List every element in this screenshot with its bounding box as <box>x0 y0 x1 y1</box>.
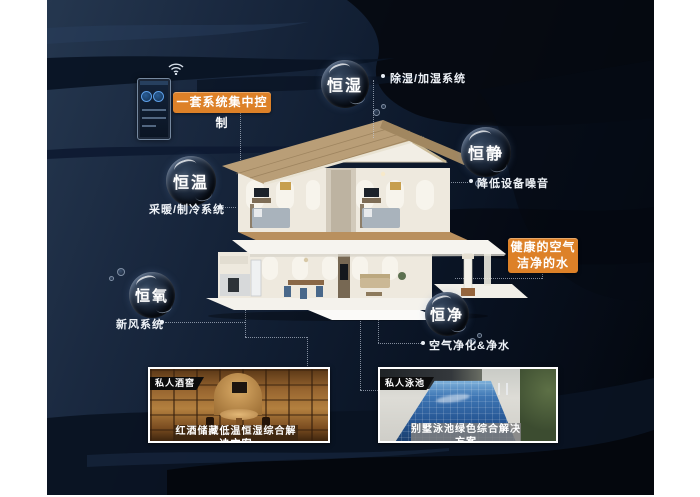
bubble-humidity: 恒湿 <box>321 60 369 108</box>
bubble-quiet: 恒静 <box>461 127 511 177</box>
note-purity: 空气净化&净水 <box>429 337 510 353</box>
corner-ribbon <box>320 367 330 393</box>
connector-line <box>307 337 308 368</box>
connector-line <box>165 322 245 323</box>
wine-cellar-frame <box>231 381 248 394</box>
bubble-decoration <box>373 109 380 116</box>
bubble-temperature: 恒温 <box>166 156 216 206</box>
note-quiet: 降低设备噪音 <box>477 175 549 191</box>
panel-dial <box>153 91 164 102</box>
bullet-dot <box>469 179 473 183</box>
bubble-oxygen: 恒氧 <box>129 272 175 318</box>
bubble-decoration <box>109 276 114 281</box>
bullet-dot <box>381 74 385 78</box>
bullet-dot <box>421 341 425 345</box>
panel-row <box>142 109 166 111</box>
healthy-air-water-callout: 健康的空气 洁净的水 <box>508 238 578 273</box>
wifi-icon <box>168 62 184 75</box>
connector-line <box>240 112 241 160</box>
note-oxygen: 新风系统 <box>116 316 164 332</box>
bubble-decoration <box>117 268 125 276</box>
note-humidity: 除湿/加湿系统 <box>390 70 466 86</box>
corner-ribbon <box>548 367 558 393</box>
wine-cellar-caption: 红酒储藏低温恒湿综合解决方案 <box>174 425 298 443</box>
pool-tag: 私人泳池 <box>380 377 434 390</box>
smart-control-panel <box>137 78 171 140</box>
wine-cellar-photo: 私人酒窖 红酒储藏低温恒湿综合解决方案 <box>148 367 330 443</box>
panel-header <box>140 81 168 85</box>
pool-ladder-icon <box>498 383 508 395</box>
connector-line <box>245 337 307 338</box>
note-temperature: 采暖/制冷系统 <box>149 201 225 217</box>
bubble-decoration <box>381 104 386 109</box>
connector-line <box>373 80 374 138</box>
pool-caption: 别墅泳池绿色综合解决方案 <box>411 423 521 443</box>
connector-line <box>360 390 378 391</box>
callout-line2: 洁净的水 <box>508 255 578 271</box>
panel-row <box>142 125 156 127</box>
callout-line1: 健康的空气 <box>508 239 578 255</box>
bubble-purity: 恒净 <box>425 292 469 336</box>
connector-line <box>378 343 421 344</box>
panel-row <box>142 117 166 119</box>
dark-canvas: 一套系统集中控制 恒湿 恒静 恒温 恒氧 恒净 除湿/加湿系统 降低设备噪音 采… <box>47 0 654 495</box>
pool-photo: 私人泳池 别墅泳池绿色综合解决方案 <box>378 367 558 443</box>
central-control-badge: 一套系统集中控制 <box>173 92 271 113</box>
infographic-page: 一套系统集中控制 恒湿 恒静 恒温 恒氧 恒净 除湿/加湿系统 降低设备噪音 采… <box>0 0 700 497</box>
panel-dial <box>141 91 152 102</box>
wine-cellar-tag: 私人酒窖 <box>150 377 204 390</box>
